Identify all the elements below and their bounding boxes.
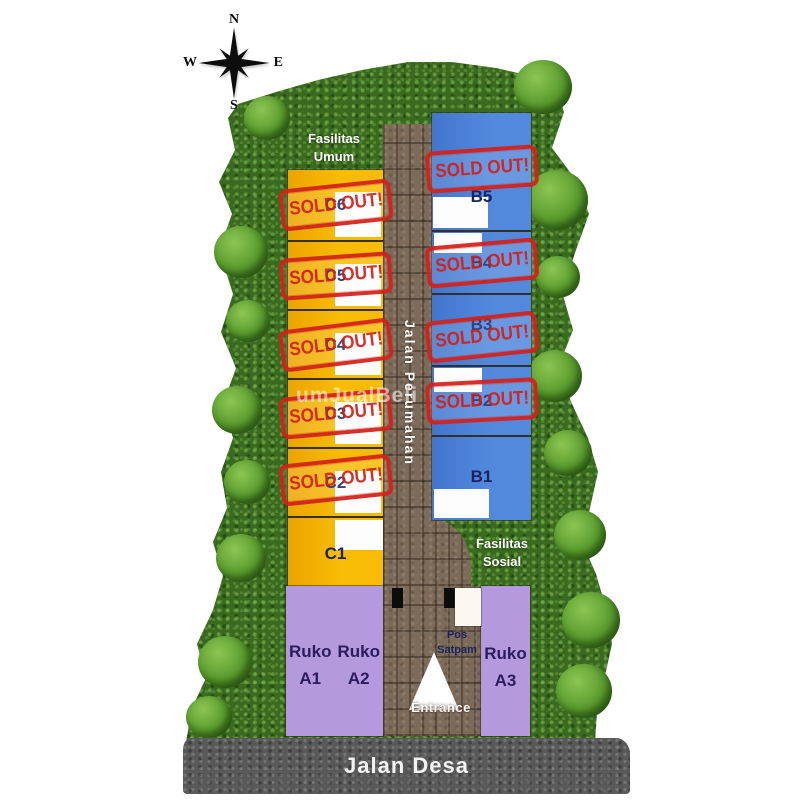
watermark: umJualBeli [296,384,418,408]
tree-bush [562,592,620,648]
tree-bush [198,636,252,688]
compass-east-label: E [274,55,283,71]
fasilitas-umum-line2: Umum [286,148,382,166]
sold-out-stamp: SOLD OUT! [278,251,393,301]
sold-out-stamp: SOLD OUT! [424,237,539,289]
tree-bush [214,226,268,278]
sold-out-text: SOLD OUT! [288,189,384,221]
ruko-a2-line2: A2 [338,665,381,692]
sold-out-text: SOLD OUT! [288,464,384,496]
tree-bush [186,696,232,738]
pos-satpam-line1: Pos [430,628,484,643]
lot-b5: B5 SOLD OUT! [432,113,531,232]
tree-bush [536,256,580,298]
ruko-a3-block: Ruko A3 [481,586,530,736]
fasilitas-sosial-label: Fasilitas Sosial [460,535,544,571]
pos-satpam-building [455,588,481,626]
lot-b2: B2 SOLD OUT! [432,367,531,437]
fasilitas-umum-line1: Fasilitas [286,130,382,148]
house-footprint [434,489,489,518]
lot-c4: C4 SOLD OUT! [288,311,383,380]
ruko-a1-label: Ruko A1 [289,638,332,736]
block-b-column: B5 SOLD OUT! B4 SOLD OUT! B3 SOLD OUT! B… [432,113,531,520]
lot-b1: B1 [432,437,531,520]
lot-b1-label: B1 [432,467,531,487]
ruko-a1-line2: A1 [289,665,332,692]
lot-b4: B4 SOLD OUT! [432,232,531,295]
ruko-a3-line2: A3 [484,667,527,694]
compass-star-icon [197,26,271,100]
block-c-column: C6 SOLD OUT! C5 SOLD OUT! C4 SOLD OUT! C… [288,170,383,586]
lot-c2: C2 SOLD OUT! [288,449,383,518]
sold-out-text: SOLD OUT! [434,247,530,277]
tree-bush [514,60,572,114]
fasilitas-sosial-line2: Sosial [460,553,544,571]
site-plan: Jalan Desa Jalan Perumahan Fasilitas Umu… [0,0,800,800]
compass-west-label: W [183,55,197,71]
lot-c1-label: C1 [288,544,383,564]
sold-out-text: SOLD OUT! [288,261,383,290]
ruko-a1-line1: Ruko [289,638,332,665]
tree-bush [226,300,270,342]
pos-satpam-label: Pos Satpam [430,628,484,658]
ruko-a3-line1: Ruko [484,640,527,667]
ruko-a2-label: Ruko A2 [338,638,381,736]
fasilitas-sosial-line1: Fasilitas [460,535,544,553]
jalan-desa-label: Jalan Desa [344,753,469,779]
lot-c5: C5 SOLD OUT! [288,242,383,311]
sold-out-stamp: SOLD OUT! [424,144,539,194]
tree-bush [544,430,592,476]
ruko-a2-line1: Ruko [338,638,381,665]
sold-out-stamp: SOLD OUT! [424,377,538,425]
gate-pillar-left [392,588,403,608]
entrance-label: Entrance [398,700,484,715]
jalan-desa-road: Jalan Desa [183,738,630,794]
tree-bush [212,386,262,434]
ruko-a1-a2-block: Ruko A1 Ruko A2 [286,586,383,736]
sold-out-text: SOLD OUT! [434,388,529,415]
ruko-a3-label: Ruko A3 [484,640,527,736]
lot-b3: B3 SOLD OUT! [432,295,531,367]
compass-north-label: N [229,12,239,28]
fasilitas-umum-label: Fasilitas Umum [286,130,382,166]
tree-bush [224,460,270,504]
tree-bush [554,510,606,560]
sold-out-text: SOLD OUT! [287,328,383,361]
lot-c6: C6 SOLD OUT! [288,170,383,242]
tree-bush [556,664,612,718]
sold-out-text: SOLD OUT! [434,155,529,184]
lot-c1: C1 [288,518,383,586]
compass-rose: N E S W [183,12,285,114]
compass-south-label: S [230,98,238,114]
tree-bush [216,534,266,582]
sold-out-text: SOLD OUT! [434,321,530,353]
pos-satpam-line2: Satpam [430,643,484,658]
